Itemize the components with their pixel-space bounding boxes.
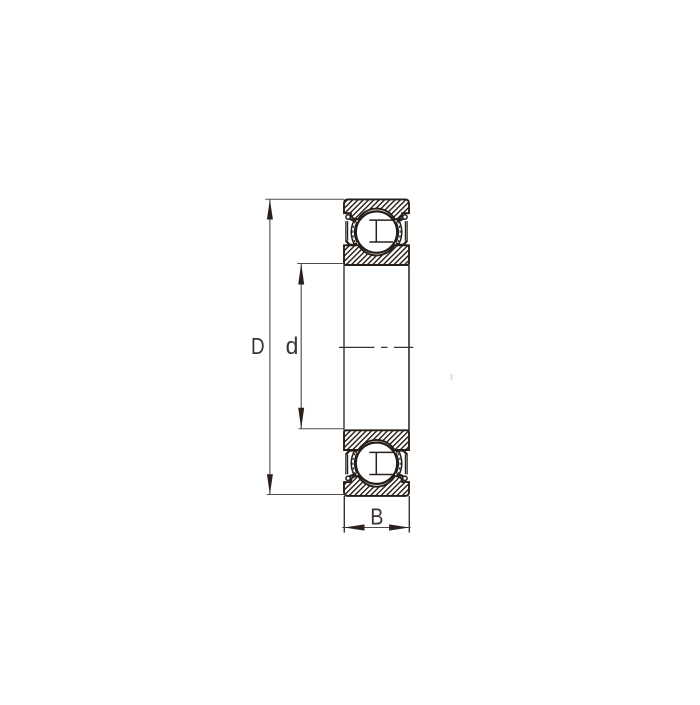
- svg-text:D: D: [251, 333, 265, 359]
- svg-text:B: B: [370, 503, 383, 529]
- svg-text:d: d: [286, 333, 299, 360]
